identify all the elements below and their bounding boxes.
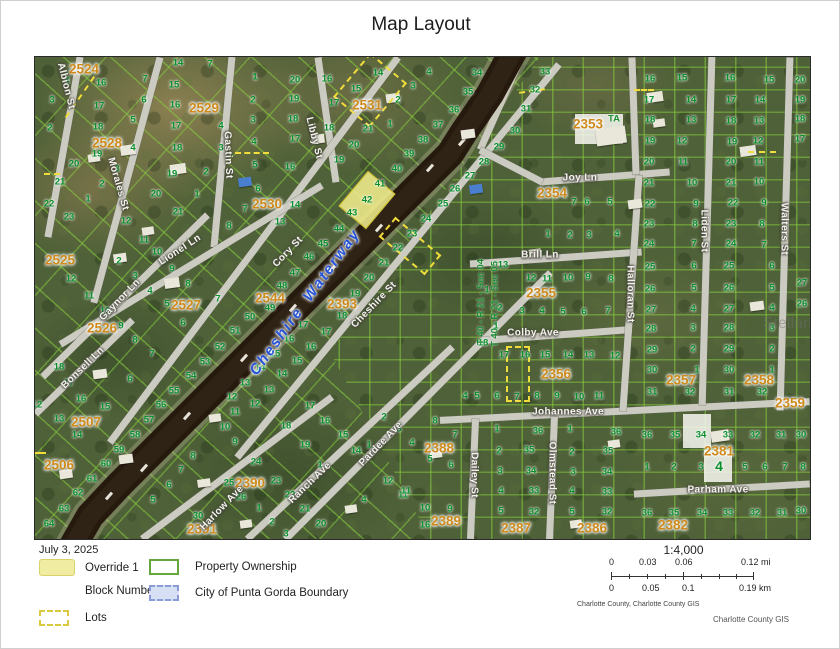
lot-number: 12 xyxy=(250,399,261,410)
legend-item-lots: Lots xyxy=(39,610,107,626)
lot-number: 15 xyxy=(292,356,303,367)
lot-number: 13 xyxy=(54,414,65,425)
lot-number: 46 xyxy=(304,252,315,263)
lot-number: 4 xyxy=(147,286,152,297)
street-label: Olmstead St xyxy=(547,442,558,505)
lot-number: 2 xyxy=(269,517,274,528)
lot-number: 14 xyxy=(277,369,288,380)
lot-number: 17 xyxy=(644,95,655,106)
lot-number: 22 xyxy=(645,199,656,210)
lot-number: 5 xyxy=(569,507,574,518)
legend-label: City of Punta Gorda Boundary xyxy=(195,587,348,599)
lot-number: 1 xyxy=(567,424,572,435)
lot-number: 26 xyxy=(797,299,808,310)
lot-number: 32 xyxy=(750,430,761,441)
lots-swatch xyxy=(39,610,69,626)
lot-number: 63 xyxy=(59,504,70,515)
lot-number: 14 xyxy=(755,95,766,106)
street-label: Joy Ln xyxy=(563,173,598,184)
scale-tick xyxy=(629,574,630,579)
block-number: 2382 xyxy=(658,518,688,533)
city-boundary-swatch xyxy=(149,585,179,601)
block-number: 2527 xyxy=(171,298,201,313)
lot-number: 27 xyxy=(724,304,735,315)
street-label: Johannes Ave xyxy=(532,407,604,418)
scale-tick xyxy=(736,574,737,579)
lot-number: 34 xyxy=(472,68,483,79)
lot-number: 40 xyxy=(392,164,403,175)
lot-number: 12 xyxy=(66,274,77,285)
lot-number: 14 xyxy=(373,68,384,79)
lot-number: 35 xyxy=(463,87,474,98)
scale-tick xyxy=(611,572,612,580)
lot-number: 11 xyxy=(230,407,240,418)
block-number: 2353 xyxy=(573,117,603,132)
lot-number: 34 xyxy=(697,508,708,519)
lot-number: 29 xyxy=(494,142,505,153)
lot-number: 43 xyxy=(347,208,358,219)
lot-number: 1 xyxy=(387,119,392,130)
scale-tick xyxy=(683,572,684,580)
lot-number: 25 xyxy=(645,262,656,273)
lot-number: 7 xyxy=(178,465,183,476)
street-label: Gastin St xyxy=(222,131,235,179)
lot-number: 29 xyxy=(724,344,735,355)
building xyxy=(460,128,475,139)
lot-number: 31 xyxy=(776,430,787,441)
lot-number: 3 xyxy=(690,323,695,334)
legend-item-ownership: Property Ownership xyxy=(149,559,297,575)
lot-number: 4 xyxy=(409,438,414,449)
lot-number: 4 xyxy=(569,486,574,497)
lot-number: 8 xyxy=(534,391,539,402)
lot-number: 20 xyxy=(151,189,162,200)
building xyxy=(92,368,107,379)
lot-number: 59 xyxy=(114,445,125,456)
lot-number: 35 xyxy=(603,446,614,457)
lot-number: 4 xyxy=(130,143,135,154)
scale-km-3: 0.19 km xyxy=(739,583,771,593)
block-number-swatch xyxy=(39,585,65,597)
lot-number: 3 xyxy=(497,466,502,477)
lot-number: 37 xyxy=(433,120,444,131)
lot-number: 20 xyxy=(644,157,655,168)
legend-item-boundary: City of Punta Gorda Boundary xyxy=(149,585,348,601)
lot-number: 27 xyxy=(797,278,808,289)
lot-number: 13 xyxy=(264,385,275,396)
lot-number: 9 xyxy=(585,272,590,283)
override-swatch xyxy=(39,559,75,576)
lot-number: 6 xyxy=(166,480,171,491)
lot-number: 11 xyxy=(139,235,149,246)
lot-number: 18 xyxy=(288,114,299,125)
block-number: 2381 xyxy=(704,444,734,459)
lot-number: 9 xyxy=(232,437,237,448)
lot-number: 58 xyxy=(130,430,141,441)
block-number: 2507 xyxy=(71,415,101,430)
block-number: 2506 xyxy=(44,458,74,473)
lot-number: 35 xyxy=(524,445,535,456)
block-number: 2526 xyxy=(87,321,117,336)
lot-number: 4 xyxy=(251,137,256,148)
lot-number: 7 xyxy=(605,306,610,317)
lot-number: 30 xyxy=(647,365,658,376)
lot-number: 2 xyxy=(569,447,574,458)
street-label: Colby Ave xyxy=(507,328,559,339)
lot-number: 6 xyxy=(691,261,696,272)
lot-number: 30 xyxy=(510,126,521,137)
legend-item-override: Override 1 xyxy=(39,559,139,576)
lot-number: 19 xyxy=(300,440,311,451)
lot-number: 10 xyxy=(574,392,585,403)
legend-label: Property Ownership xyxy=(195,561,297,573)
map-canvas: 4167147317615218516174183194203212122231… xyxy=(34,56,811,540)
lot-number: 22 xyxy=(393,243,404,254)
stellar-mls-watermark: StellarMLS xyxy=(763,315,811,333)
lot-number: 18 xyxy=(645,115,656,126)
lot-number: 8 xyxy=(800,462,805,473)
lot-number: 1 xyxy=(545,229,550,240)
lot-number: 15 xyxy=(338,430,349,441)
map-date: July 3, 2025 xyxy=(39,544,98,556)
lot-number: 11 xyxy=(754,157,764,168)
lot-number: 36 xyxy=(533,426,544,437)
lot-number: 18 xyxy=(93,122,104,133)
scale-km-1: 0.05 xyxy=(642,583,660,593)
lot-number: 21 xyxy=(300,504,311,515)
block-number: 2393 xyxy=(327,297,357,312)
block-number: 2524 xyxy=(69,62,99,77)
lot-number: 6 xyxy=(769,261,774,272)
lot-number: 36 xyxy=(642,430,653,441)
lot-number: 2 xyxy=(381,412,386,423)
lot-number: 17 xyxy=(329,98,340,109)
lot-number: 8 xyxy=(692,219,697,230)
lot-number: 8 xyxy=(226,221,231,232)
lot-number: 26 xyxy=(724,283,735,294)
lot-number: 4 xyxy=(614,229,619,240)
lot-number: 30 xyxy=(796,506,807,517)
lot-number: 15 xyxy=(351,84,362,95)
lot-number: 19 xyxy=(289,94,300,105)
lot-number: 10 xyxy=(687,178,698,189)
lot-number: 7 xyxy=(215,294,220,305)
lot-number: 15 xyxy=(540,350,551,361)
scale-tick xyxy=(753,572,754,580)
lot-number: 21 xyxy=(726,178,737,189)
lot-number: 13 xyxy=(686,115,697,126)
lot-number: 12 xyxy=(227,392,238,403)
scale-tick xyxy=(719,574,720,579)
lot-number: 18 xyxy=(172,143,183,154)
lot-number: 3 xyxy=(698,462,703,473)
lot-number: 31 xyxy=(647,387,658,398)
section-label: T 40 - R 21 - Sec 04 xyxy=(476,259,487,345)
lot-number: 8 xyxy=(608,274,613,285)
lot-number: 3 xyxy=(410,81,415,92)
lot-number: 20 xyxy=(364,273,375,284)
lot-number: 5 xyxy=(742,462,747,473)
scale-tick xyxy=(647,574,648,579)
block-number: 2387 xyxy=(501,521,531,536)
lot-number: 11 xyxy=(542,274,552,285)
section-label: T 40 - R 21 - Sec 05 xyxy=(490,261,501,347)
lot-number: 5 xyxy=(498,506,503,517)
lot-number: 47 xyxy=(290,268,301,279)
lot-number: 3 xyxy=(586,230,591,241)
lot-number: 5 xyxy=(560,307,565,318)
lot-number: 13 xyxy=(275,217,286,228)
lot-number: 24 xyxy=(726,239,737,250)
lot-number: 7 xyxy=(691,239,696,250)
lot-number: 17 xyxy=(499,350,510,361)
lot-number: 2 xyxy=(203,167,208,178)
block-number: 2355 xyxy=(526,286,556,301)
lot-number: 4 xyxy=(690,304,695,315)
lot-number: 1 xyxy=(252,72,257,83)
lot-number: 36 xyxy=(642,508,653,519)
building xyxy=(237,176,251,187)
legend-label: Block Number xyxy=(85,585,157,597)
lot-number: 32 xyxy=(529,507,540,518)
lot-number: 32 xyxy=(602,507,613,518)
lot-number: 9 xyxy=(761,198,766,209)
lot-dashed-line xyxy=(748,151,776,153)
block-number: 2529 xyxy=(189,101,219,116)
lot-number: 21 xyxy=(379,258,390,269)
lot-number: 28 xyxy=(479,157,490,168)
lot-number: 12 xyxy=(121,216,132,227)
cheshire-waterway xyxy=(35,57,810,539)
map-layout-page: Map Layout 41671473176152185161741831942… xyxy=(0,0,840,649)
lot-number: 23 xyxy=(407,229,418,240)
lot-number: 34 xyxy=(602,467,613,478)
map-attribution: Charlotte County, Charlotte County GIS xyxy=(577,601,699,608)
lot-number: 7 xyxy=(782,462,787,473)
lot-number: 21 xyxy=(363,124,374,135)
lot-number: 6 xyxy=(141,95,146,106)
block-number: 2356 xyxy=(541,367,571,382)
lot-number: 41 xyxy=(375,179,386,190)
scale-mi-3: 0.12 mi xyxy=(741,557,771,567)
lot-number: 31 xyxy=(724,387,735,398)
lot-number: 32 xyxy=(685,387,696,398)
lot-number: 4 xyxy=(498,486,503,497)
lot-number: 5 xyxy=(607,197,612,208)
lot-number: 3 xyxy=(519,306,524,317)
lot-number: 8 xyxy=(759,219,764,230)
lot-number: 7 xyxy=(207,59,212,70)
lot-number: 2 xyxy=(116,256,121,267)
lot-number: 25 xyxy=(438,199,449,210)
lot-number: 25 xyxy=(724,261,735,272)
lot-number: 3 xyxy=(570,467,575,478)
lot-number: 29 xyxy=(647,345,658,356)
lot-dashed-line xyxy=(634,89,654,91)
lot-number: 9 xyxy=(693,199,698,210)
lot-number: 12 xyxy=(34,400,42,411)
lot-number: 14 xyxy=(563,350,574,361)
lot-number: 24 xyxy=(644,239,655,250)
lot-number: 20 xyxy=(290,75,301,86)
lot-number: 31 xyxy=(521,104,532,115)
building xyxy=(240,519,253,529)
lot-number: 2 xyxy=(496,446,501,457)
building xyxy=(197,478,211,488)
lot-number: 50 xyxy=(245,312,256,323)
lot-number: 8 xyxy=(432,416,437,427)
lot-number: 23 xyxy=(271,476,282,487)
lot-number: 33 xyxy=(723,508,734,519)
block-number: 2525 xyxy=(45,253,75,268)
lot-number: 33 xyxy=(540,67,551,78)
lot-number: 16 xyxy=(320,416,331,427)
scale-mi-2: 0.06 xyxy=(675,557,693,567)
lot-number: 3 xyxy=(49,95,54,106)
lot-number: 5 xyxy=(130,115,135,126)
lot-number: 38 xyxy=(418,135,429,146)
lot-number: 17 xyxy=(171,121,182,132)
ta-label: TA xyxy=(608,114,620,125)
lot-number: 32 xyxy=(757,387,768,398)
lot-number: 31 xyxy=(777,508,788,519)
block-number: 2544 xyxy=(255,291,285,306)
lot-number: 36 xyxy=(611,427,622,438)
lot-number: 33 xyxy=(529,486,540,497)
lot-number: 2 xyxy=(47,123,52,134)
scale-ratio: 1:4,000 xyxy=(611,543,756,557)
lot-number: 7 xyxy=(571,197,576,208)
street-label: Walters St xyxy=(779,203,790,256)
lot-number: 11 xyxy=(84,291,94,302)
lot-number: 55 xyxy=(169,386,180,397)
lot-number: 18 xyxy=(795,114,806,125)
lot-number: 17 xyxy=(795,134,806,145)
lot-number: 34 xyxy=(696,430,707,441)
building xyxy=(627,198,642,209)
lot-number: 16 xyxy=(170,100,181,111)
lot-number: 15 xyxy=(100,402,111,413)
lot-number: 24 xyxy=(421,214,432,225)
lot-number: 14 xyxy=(686,95,697,106)
scale-mi-0: 0 xyxy=(609,557,614,567)
lot-dashed-line xyxy=(235,152,269,154)
lot-number: 19 xyxy=(334,155,345,166)
scale-mi-1: 0.03 xyxy=(639,557,657,567)
lot-number: 11 xyxy=(678,157,688,168)
lot-number: 15 xyxy=(169,80,180,91)
street-label: Brill Ln xyxy=(521,250,559,261)
lot-number: 11 xyxy=(401,486,411,497)
block-number: 2358 xyxy=(744,373,774,388)
lot-number: 14 xyxy=(351,446,362,457)
lot-number: 27 xyxy=(646,305,657,316)
lot-number: 28 xyxy=(646,324,657,335)
lot-number: 32 xyxy=(750,508,761,519)
lot-number: 2 xyxy=(250,95,255,106)
lot-number: 7 xyxy=(142,74,147,85)
gis-credit: Charlotte County GIS xyxy=(691,615,811,624)
lot-number: 8 xyxy=(132,335,137,346)
legend-label: Lots xyxy=(85,612,107,624)
lot-number: 6 xyxy=(180,318,185,329)
lot-number: 13 xyxy=(754,116,765,127)
lot-number: 14 xyxy=(72,430,83,441)
lot-number: 6 xyxy=(448,460,453,471)
lot-number: 7 xyxy=(242,204,247,215)
lot-number: 42 xyxy=(362,195,373,206)
lot-number: 7 xyxy=(452,430,457,441)
lot-number: 4 xyxy=(462,391,467,402)
lot-number: 12 xyxy=(677,136,688,147)
lot-number-highlight: 4 xyxy=(715,458,723,474)
lot-number: 3 xyxy=(250,115,255,126)
lot-number: 16 xyxy=(96,78,107,89)
lot-number: 28 xyxy=(724,323,735,334)
lot-number: 5 xyxy=(252,160,257,171)
lot-number: 17 xyxy=(321,327,332,338)
lot-number: 20 xyxy=(69,159,80,170)
street-label: Halloran St xyxy=(625,265,636,322)
building xyxy=(468,183,482,194)
lot-number: 17 xyxy=(290,134,301,145)
street-label: Parham Ave xyxy=(687,485,748,496)
lot-number: 26 xyxy=(645,284,656,295)
lot-number: 6 xyxy=(584,197,589,208)
lot-number: 39 xyxy=(404,149,415,160)
lot-number: 61 xyxy=(87,474,98,485)
page-title: Map Layout xyxy=(1,14,840,36)
block-number: 2357 xyxy=(666,373,696,388)
lot-number: 2 xyxy=(395,95,400,106)
lot-number: 33 xyxy=(723,430,734,441)
lot-number: 4 xyxy=(769,303,774,314)
lot-number: 21 xyxy=(644,178,655,189)
lot-number: 64 xyxy=(44,519,55,530)
lot-number: 12 xyxy=(610,351,621,362)
block-number: 2354 xyxy=(537,186,567,201)
lot-number: 16 xyxy=(76,394,87,405)
lot-number: 25 xyxy=(224,478,235,489)
street-label: Dailey St xyxy=(469,452,480,498)
lot-number: 27 xyxy=(465,171,476,182)
lot-number: 1 xyxy=(494,424,499,435)
lot-number: 57 xyxy=(144,415,155,426)
lot-number: 12 xyxy=(383,476,394,487)
lot-dashed-line xyxy=(34,452,46,454)
lot-number: 16 xyxy=(420,520,431,531)
lot-number: 3 xyxy=(283,529,288,540)
lot-number: 22 xyxy=(728,198,739,209)
lot-number: 14 xyxy=(290,200,301,211)
lot-number: 18 xyxy=(726,116,737,127)
lot-number: 2 xyxy=(671,462,676,473)
lot-number: 32 xyxy=(530,85,541,96)
lot-number: 12 xyxy=(526,273,537,284)
lot-number: 13 xyxy=(240,378,251,389)
lot-number: 19 xyxy=(795,95,806,106)
lot-number: 5 xyxy=(769,283,774,294)
lot-number: 6 xyxy=(255,184,260,195)
lot-number: 52 xyxy=(215,342,226,353)
lot-number: 1 xyxy=(256,503,261,514)
lot-number: 15 xyxy=(677,73,688,84)
lot-number: 15 xyxy=(764,75,775,86)
lot-number: 60 xyxy=(101,459,112,470)
lot-number: 9 xyxy=(118,321,123,332)
lot-number: 51 xyxy=(230,326,241,337)
lot-number: 22 xyxy=(44,199,55,210)
